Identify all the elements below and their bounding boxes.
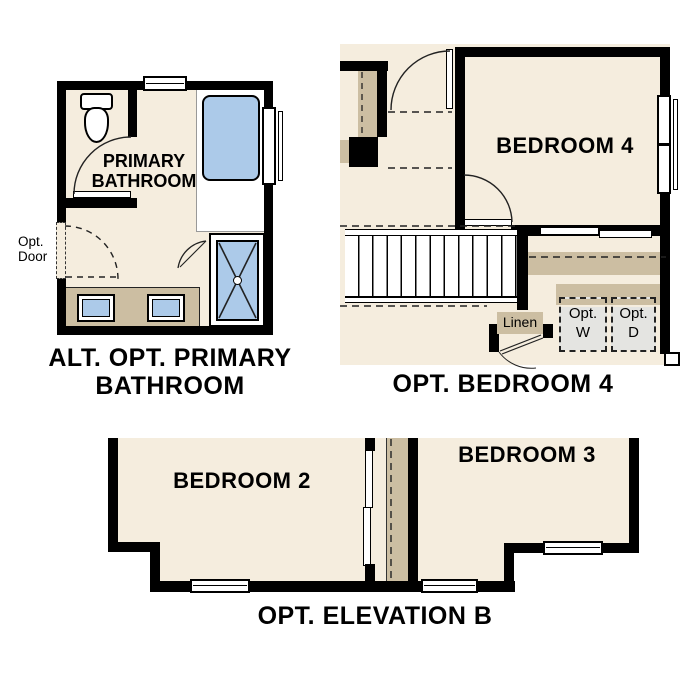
plan-title-alt-primary-bathroom: ALT. OPT. PRIMARY BATHROOM: [25, 346, 315, 398]
room-label-bedroom2: BEDROOM 2: [167, 470, 317, 492]
room-label-primary-bathroom: PRIMARY BATHROOM: [84, 148, 204, 194]
opt-dryer-label: Opt. D: [611, 303, 656, 345]
mid-window-lower: [363, 507, 371, 566]
bedroom2-left-wall: [108, 438, 118, 552]
mid-wall: [408, 438, 418, 590]
bedroom2-floor-lower: [160, 552, 386, 581]
bedroom3-right-wall: [629, 438, 639, 553]
room-label-bedroom3: BEDROOM 3: [452, 444, 602, 466]
mid-window-upper: [365, 450, 373, 508]
bedroom3-bottom-window: [421, 579, 478, 593]
bedroom3-step-wall: [504, 543, 514, 590]
room-label-bedroom4: BEDROOM 4: [490, 134, 640, 158]
mid-chase: [386, 438, 408, 581]
opt-door-label: Opt. Door: [18, 230, 62, 268]
plan-title-opt-elevation-b: OPT. ELEVATION B: [230, 602, 520, 630]
bedroom3-floor-lower: [418, 543, 504, 581]
bedroom3-notch-window: [543, 541, 603, 555]
linen-label-box: Linen: [497, 312, 543, 334]
bedroom2-bottom-window: [190, 579, 250, 593]
shower-drain: [233, 276, 242, 285]
opt-washer-label: Opt. W: [559, 303, 607, 345]
plan-title-opt-bedroom4: OPT. BEDROOM 4: [358, 370, 648, 398]
floorplan-sheet: PRIMARY BATHROOM Opt. Door ALT. OPT. PRI…: [0, 0, 687, 687]
bedroom2-floor: [108, 438, 386, 552]
mid-window-cap-bottom: [365, 564, 375, 581]
